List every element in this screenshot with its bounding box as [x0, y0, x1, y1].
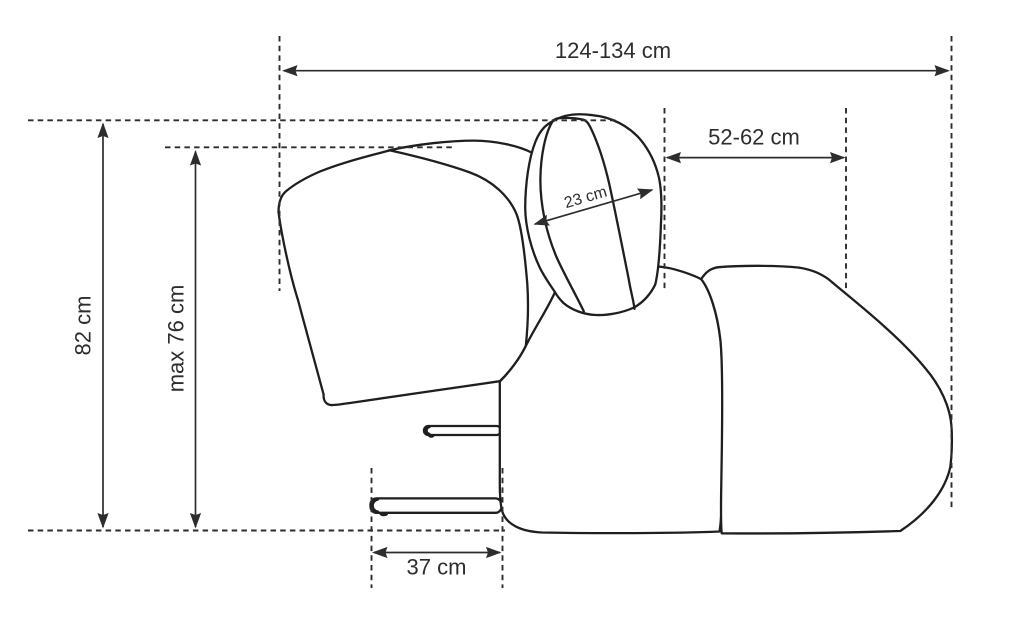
svg-text:max 76 cm: max 76 cm: [164, 285, 189, 393]
svg-text:124-134 cm: 124-134 cm: [555, 38, 671, 63]
svg-text:37 cm: 37 cm: [407, 555, 467, 580]
svg-text:82 cm: 82 cm: [71, 296, 96, 356]
svg-text:52-62 cm: 52-62 cm: [708, 125, 800, 150]
